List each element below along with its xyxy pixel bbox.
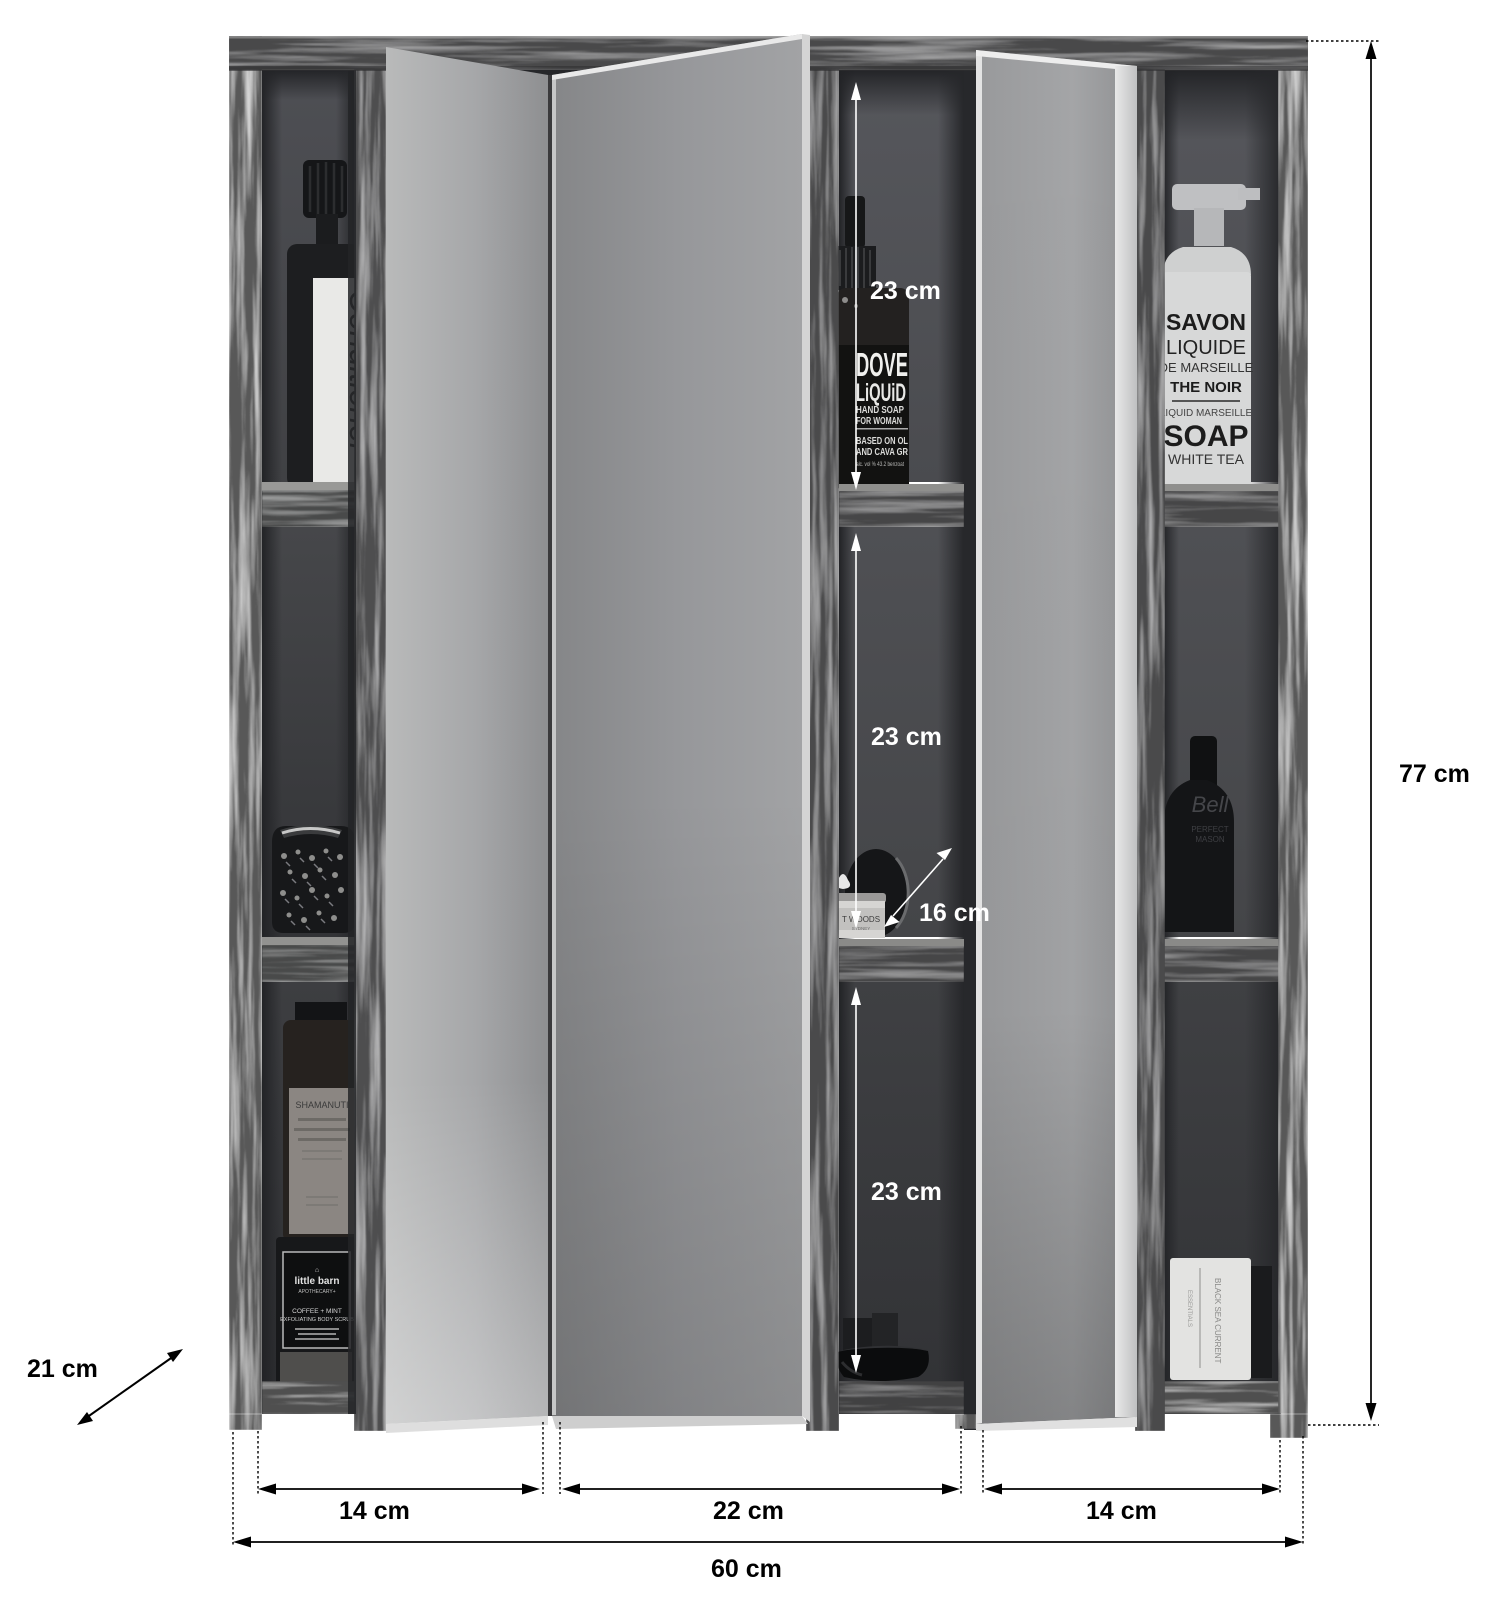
svg-text:23 cm: 23 cm — [871, 1178, 942, 1206]
svg-text:SOAP: SOAP — [1163, 420, 1248, 453]
svg-text:PERFECT: PERFECT — [1191, 825, 1228, 834]
svg-text:SHAMANUTI: SHAMANUTI — [295, 1100, 348, 1110]
svg-text:23 cm: 23 cm — [871, 723, 942, 751]
svg-text:SAVON: SAVON — [1166, 309, 1246, 335]
svg-text:16 cm: 16 cm — [919, 899, 990, 927]
svg-text:60 cm: 60 cm — [711, 1555, 782, 1583]
svg-text:EXFOLIATING BODY SCRUB: EXFOLIATING BODY SCRUB — [280, 1317, 354, 1323]
svg-text:THE NOIR: THE NOIR — [1170, 379, 1242, 396]
svg-text:ESSENTIALS: ESSENTIALS — [1186, 1290, 1192, 1327]
svg-text:77 cm: 77 cm — [1399, 760, 1470, 788]
svg-text:APOTHECARY+: APOTHECARY+ — [298, 1289, 335, 1295]
svg-text:21 cm: 21 cm — [27, 1355, 98, 1383]
svg-text:little barn: little barn — [294, 1276, 339, 1287]
svg-text:WHITE TEA: WHITE TEA — [1168, 451, 1245, 467]
svg-text:LIQUID MARSEILLE: LIQUID MARSEILLE — [1160, 408, 1253, 419]
svg-text:14 cm: 14 cm — [1086, 1497, 1157, 1525]
svg-text:BLACK SEA CURRENT: BLACK SEA CURRENT — [1213, 1278, 1222, 1363]
svg-text:22 cm: 22 cm — [713, 1497, 784, 1525]
svg-text:AND CAVA GR: AND CAVA GR — [856, 446, 908, 458]
svg-text:alc. vol % 43.2 benzoat: alc. vol % 43.2 benzoat — [856, 461, 904, 468]
svg-text:14 cm: 14 cm — [339, 1497, 410, 1525]
svg-text:DOVE: DOVE — [856, 346, 908, 383]
svg-text:FOR WOMAN: FOR WOMAN — [856, 416, 902, 427]
svg-text:MASON: MASON — [1195, 835, 1225, 844]
svg-text:HAND SOAP: HAND SOAP — [856, 405, 904, 416]
svg-text:SYDNEY: SYDNEY — [852, 926, 871, 931]
svg-text:LiQUiD: LiQUiD — [856, 379, 906, 407]
svg-text:T WOODS: T WOODS — [842, 915, 880, 924]
svg-text:COFFEE + MINT: COFFEE + MINT — [292, 1308, 342, 1315]
svg-text:DE MARSEILLE: DE MARSEILLE — [1159, 360, 1254, 375]
svg-text:LIQUIDE: LIQUIDE — [1166, 337, 1246, 359]
svg-text:⌂: ⌂ — [315, 1267, 319, 1274]
svg-text:23 cm: 23 cm — [870, 277, 941, 305]
svg-text:Bell: Bell — [1192, 792, 1230, 817]
